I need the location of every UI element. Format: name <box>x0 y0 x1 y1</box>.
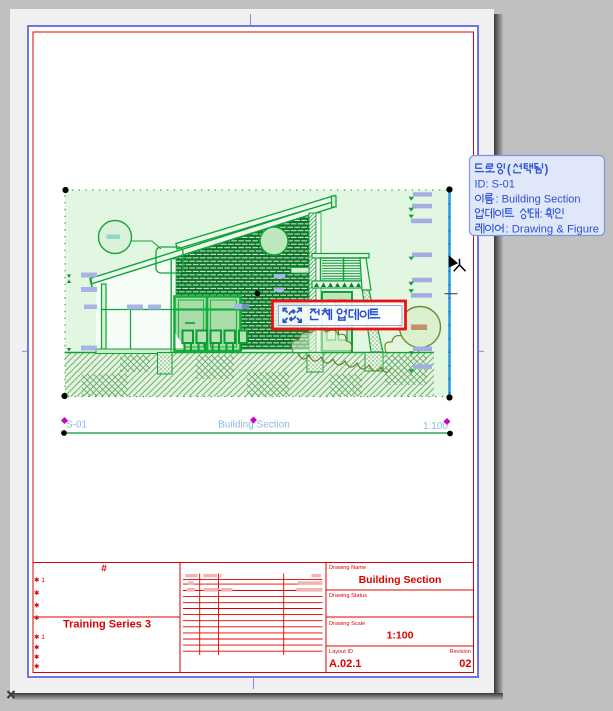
svg-text:✱ 1: ✱ 1 <box>34 576 45 584</box>
svg-text:✱: ✱ <box>34 589 40 597</box>
svg-text:Training Series 3: Training Series 3 <box>63 619 151 631</box>
svg-text:02: 02 <box>459 658 471 670</box>
svg-text::: : <box>540 209 543 221</box>
svg-text:): ) <box>545 164 549 176</box>
svg-text:✱: ✱ <box>34 644 40 652</box>
svg-text:Revision: Revision <box>450 649 471 655</box>
svg-text:: Building Section: : Building Section <box>496 194 581 206</box>
svg-text:S-01: S-01 <box>66 420 88 431</box>
svg-text:1:100: 1:100 <box>387 630 414 642</box>
svg-text:✱: ✱ <box>34 663 40 671</box>
svg-text:ID: S-01: ID: S-01 <box>475 179 515 191</box>
svg-text:✱: ✱ <box>34 653 40 661</box>
svg-text:: Drawing & Figure: : Drawing & Figure <box>506 224 600 236</box>
svg-text:#: # <box>101 564 107 575</box>
svg-text:✱ 1: ✱ 1 <box>34 633 45 641</box>
svg-text:✱: ✱ <box>34 602 40 610</box>
svg-text:✱: ✱ <box>34 614 40 622</box>
svg-text:Drawing Name: Drawing Name <box>329 565 366 571</box>
svg-text:Layout ID: Layout ID <box>329 649 353 655</box>
svg-text:(: ( <box>507 164 511 176</box>
svg-text:A.02.1: A.02.1 <box>329 658 361 670</box>
svg-text:1:100: 1:100 <box>423 421 448 432</box>
svg-text:Building Section: Building Section <box>359 574 442 586</box>
svg-text:Drawing Scale: Drawing Scale <box>329 621 365 627</box>
svg-text:Drawing Status: Drawing Status <box>329 593 367 599</box>
